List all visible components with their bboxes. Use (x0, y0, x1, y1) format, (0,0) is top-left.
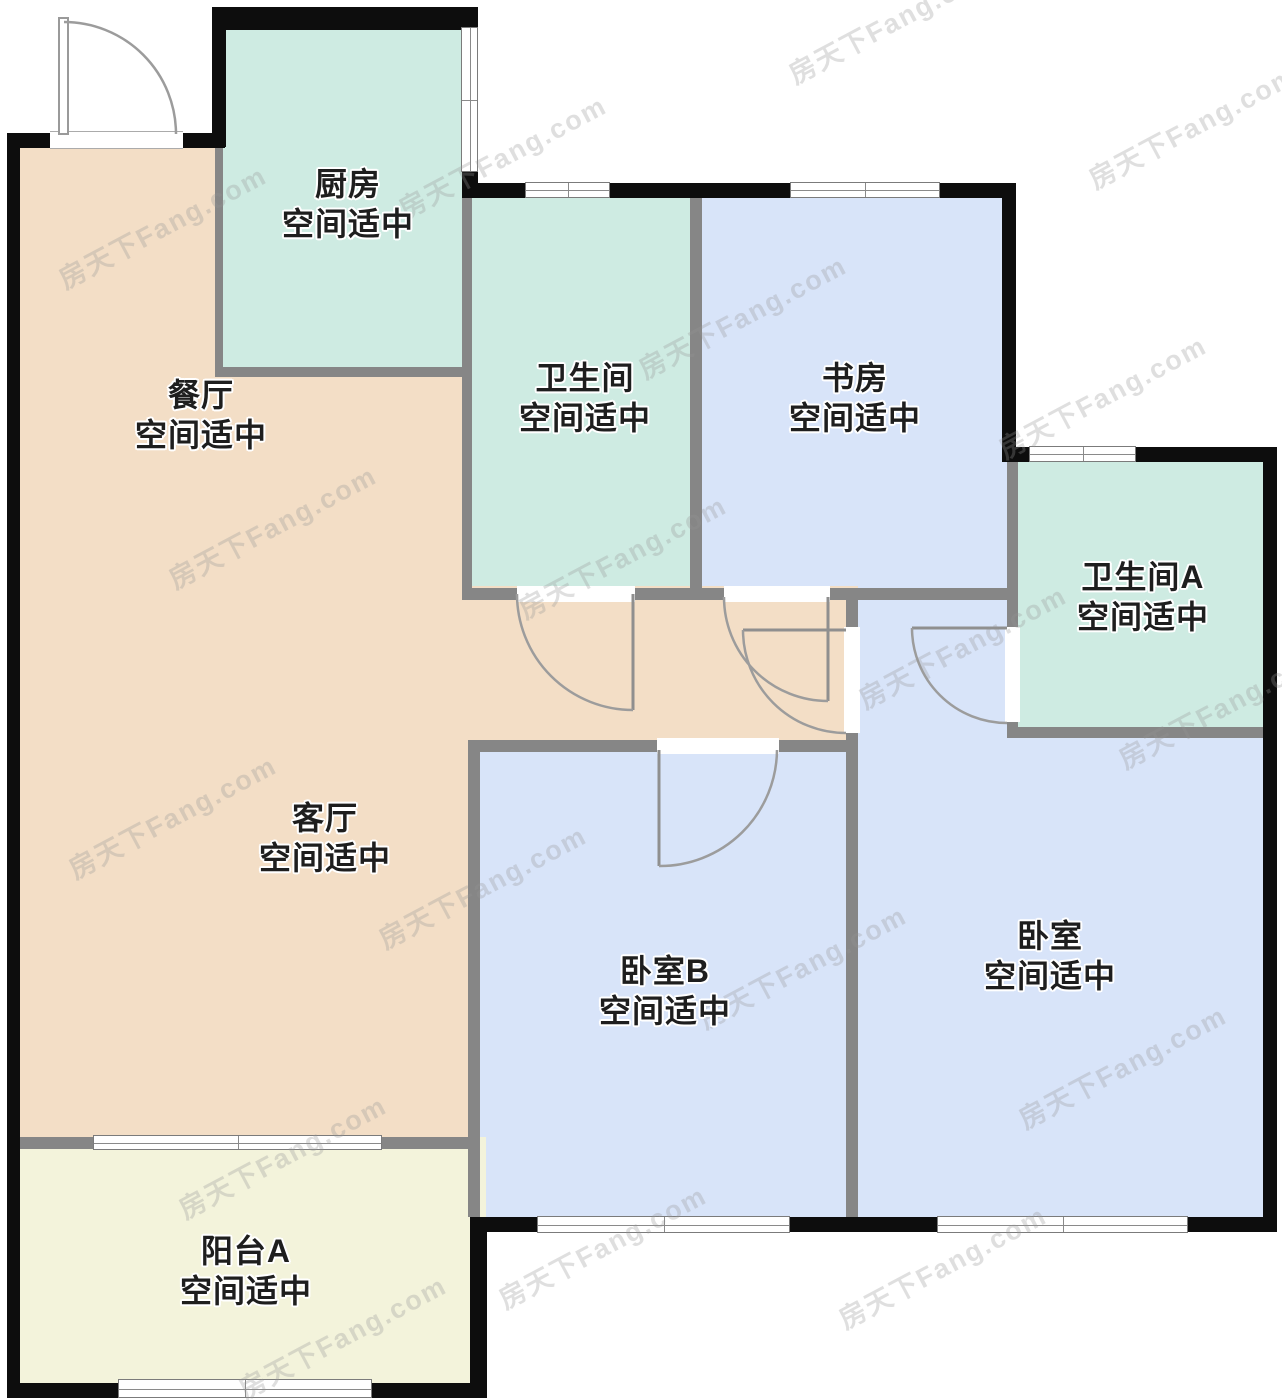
room-status: 空间适中 (789, 398, 921, 438)
room-status: 空间适中 (984, 956, 1116, 996)
room-label-dining: 餐厅 空间适中 (135, 375, 267, 455)
entry-door-leaf (59, 18, 68, 134)
room-label-study: 书房 空间适中 (789, 358, 921, 438)
room-name: 厨房 (282, 164, 414, 204)
room-status: 空间适中 (519, 398, 651, 438)
room-status: 空间适中 (180, 1271, 312, 1311)
bedroom-b-door-arc (659, 750, 777, 866)
room-name: 卫生间A (1077, 557, 1209, 597)
floorplan-canvas: 房天下Fang.com 房天下Fang.com 房天下Fang.com 房天下F… (0, 0, 1282, 1400)
room-label-bedroom-b: 卧室B 空间适中 (599, 951, 731, 1031)
room-status: 空间适中 (135, 415, 267, 455)
room-status: 空间适中 (282, 204, 414, 244)
room-name: 卧室B (599, 951, 731, 991)
room-status: 空间适中 (1077, 597, 1209, 637)
room-name: 卫生间 (519, 358, 651, 398)
room-label-bathroom-a: 卫生间A 空间适中 (1077, 557, 1209, 637)
room-name: 餐厅 (135, 375, 267, 415)
bathroom-door-arc (517, 594, 633, 710)
room-label-bathroom: 卫生间 空间适中 (519, 358, 651, 438)
room-label-balcony: 阳台A 空间适中 (180, 1231, 312, 1311)
entry-door-arc (64, 22, 176, 134)
room-label-living: 客厅 空间适中 (259, 798, 391, 878)
room-label-bedroom: 卧室 空间适中 (984, 916, 1116, 996)
room-name: 书房 (789, 358, 921, 398)
door-swings-layer (0, 0, 1282, 1400)
room-label-kitchen: 厨房 空间适中 (282, 164, 414, 244)
room-name: 阳台A (180, 1231, 312, 1271)
room-name: 客厅 (259, 798, 391, 838)
room-status: 空间适中 (259, 838, 391, 878)
bathroom-a-door-arc (912, 628, 1007, 723)
room-name: 卧室 (984, 916, 1116, 956)
study-door-arc (724, 597, 828, 701)
bedroom-door-arc (743, 630, 846, 733)
room-status: 空间适中 (599, 991, 731, 1031)
